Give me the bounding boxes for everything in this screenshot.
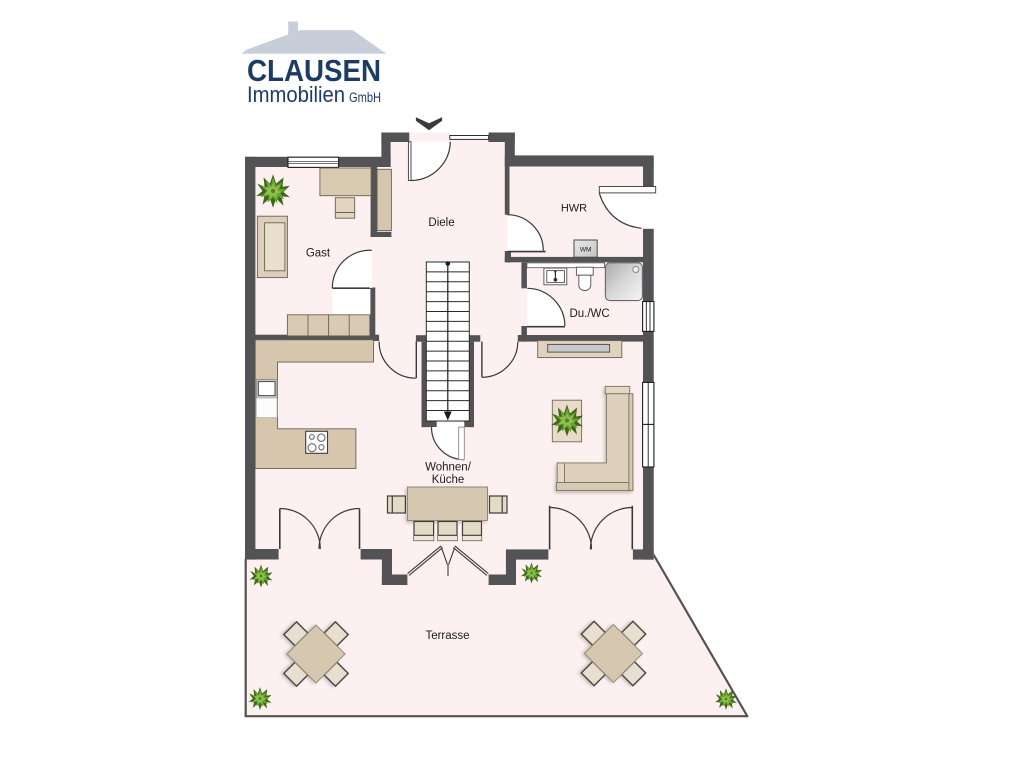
svg-text:Immobilien: Immobilien	[247, 82, 345, 107]
svg-text:Wohnen/: Wohnen/	[425, 462, 472, 474]
svg-text:Diele: Diele	[428, 217, 454, 229]
svg-text:GmbH: GmbH	[349, 90, 381, 105]
svg-text:WM: WM	[580, 246, 592, 253]
svg-text:Küche: Küche	[432, 474, 465, 486]
svg-text:Gast: Gast	[306, 247, 331, 259]
svg-text:HWR: HWR	[561, 202, 587, 214]
svg-text:Terrasse: Terrasse	[425, 630, 469, 642]
svg-text:Du./WC: Du./WC	[569, 308, 609, 320]
